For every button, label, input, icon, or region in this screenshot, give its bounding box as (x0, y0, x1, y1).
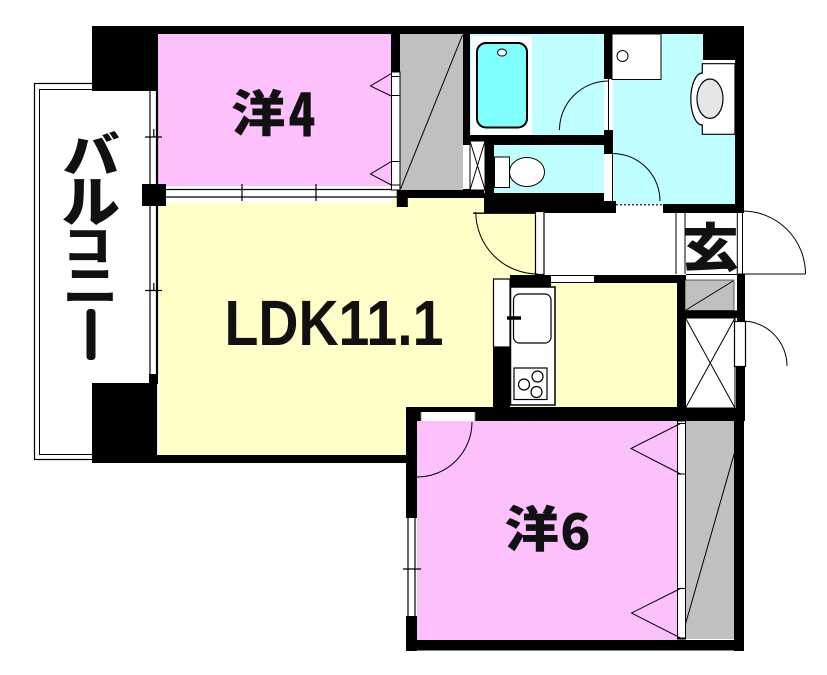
svg-text:LDK11.1: LDK11.1 (225, 287, 444, 359)
